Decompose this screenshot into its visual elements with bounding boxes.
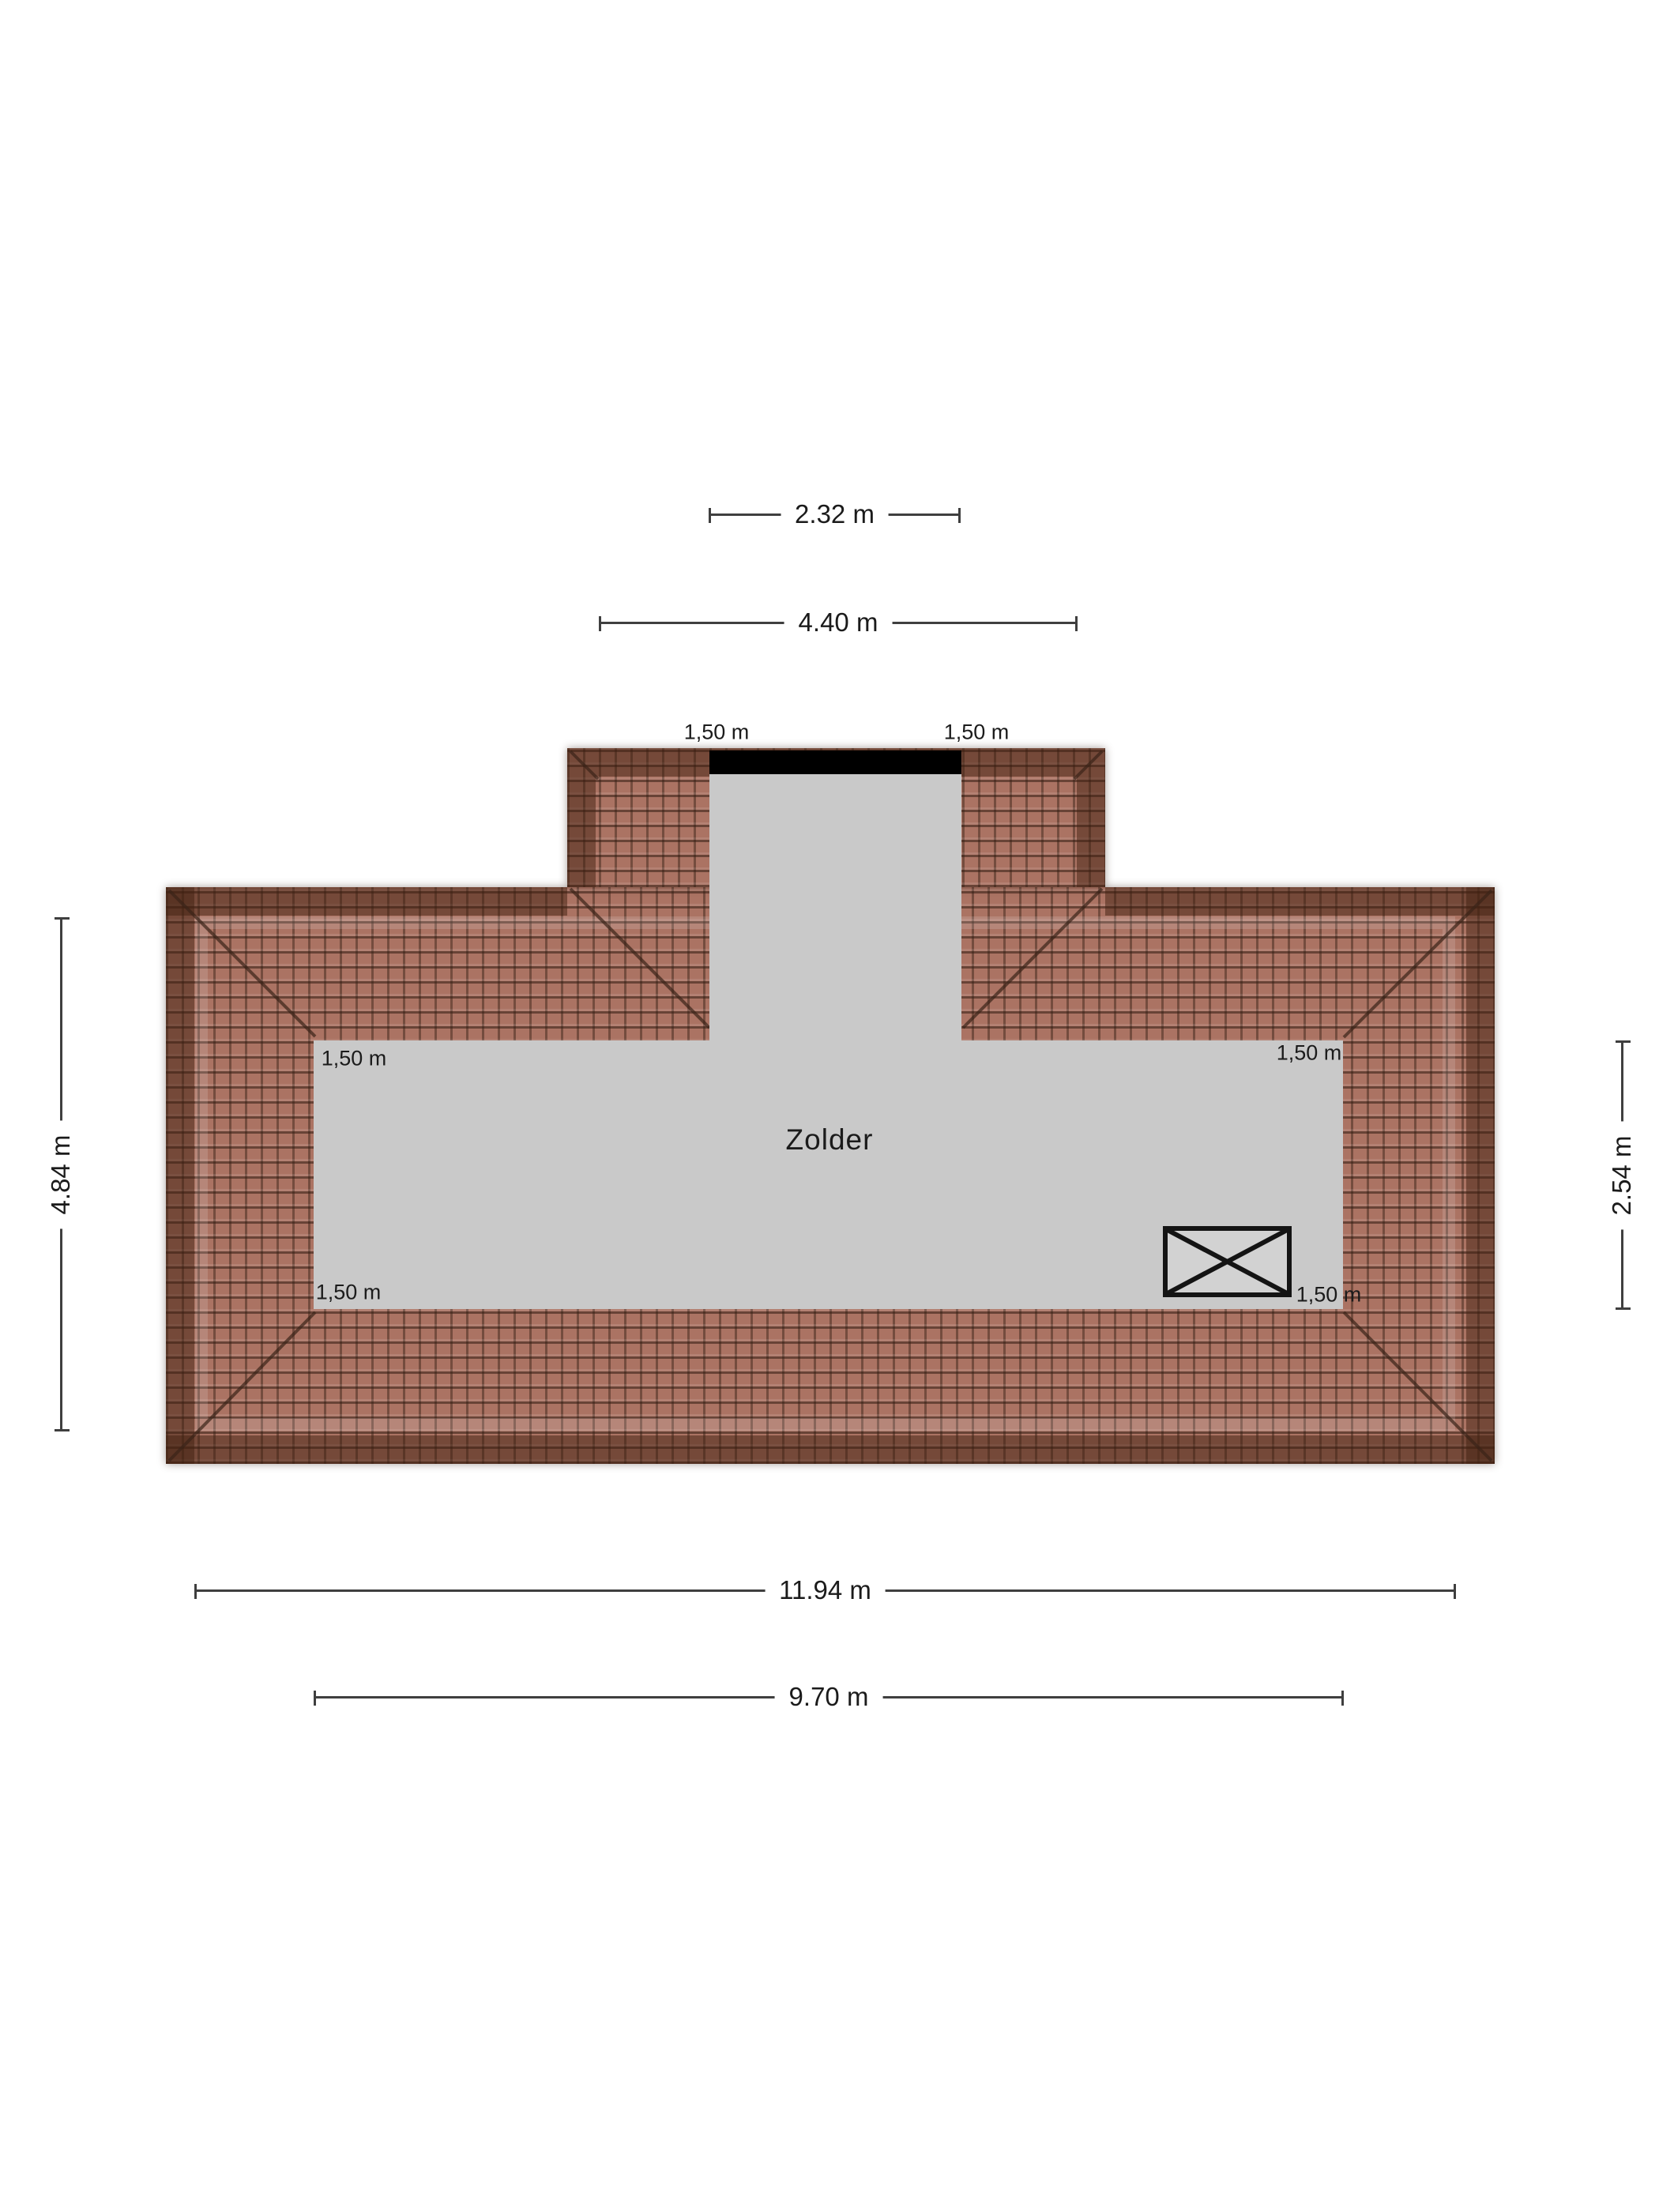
dimension-dormer-inner-width: 2.32 m	[709, 513, 960, 516]
dimension-floor-width: 9.70 m	[314, 1696, 1343, 1698]
dimension-label: 11.94 m	[765, 1575, 886, 1605]
dimension-floor-height-right: 2.54 m	[1621, 1041, 1623, 1309]
dimension-dormer-outer-width: 4.40 m	[600, 622, 1077, 624]
roof-eave-right	[1466, 887, 1495, 1464]
roof-eave-left	[166, 887, 194, 1464]
dormer-eave-right	[1077, 777, 1105, 887]
dimension-label: 4.84 m	[46, 1120, 76, 1228]
label-roof-strip-dormer-right: 1,50 m	[944, 720, 1010, 745]
dimension-left-wall-height: 4.84 m	[60, 918, 62, 1431]
dimension-label: 4.40 m	[784, 608, 893, 638]
label-roof-strip-top-right: 1,50 m	[1277, 1041, 1342, 1066]
dormer-eave-left	[567, 777, 596, 887]
roof-eave-top-right	[1105, 887, 1495, 916]
dimension-label: 2.54 m	[1607, 1121, 1637, 1229]
floor-dormer-stem	[709, 750, 961, 1040]
stair-opening-symbol	[1163, 1226, 1292, 1297]
roof-eave-bottom	[166, 1435, 1495, 1464]
label-roof-strip-dormer-left: 1,50 m	[684, 720, 750, 745]
dormer-window-bar	[709, 750, 961, 774]
label-roof-strip-bottom-left: 1,50 m	[316, 1281, 382, 1305]
dimension-label: 9.70 m	[775, 1682, 883, 1712]
dimension-total-width: 11.94 m	[195, 1589, 1455, 1592]
roof-eave-top-left	[166, 887, 567, 916]
label-roof-strip-bottom-right: 1,50 m	[1296, 1283, 1362, 1307]
dimension-label: 2.32 m	[781, 499, 889, 529]
label-roof-strip-top-left: 1,50 m	[322, 1047, 387, 1071]
room-label: Zolder	[786, 1123, 874, 1157]
attic-floorplan-page: Zolder 1,50 m 1,50 m 1,50 m 1,50 m 1,50 …	[0, 0, 1659, 2212]
